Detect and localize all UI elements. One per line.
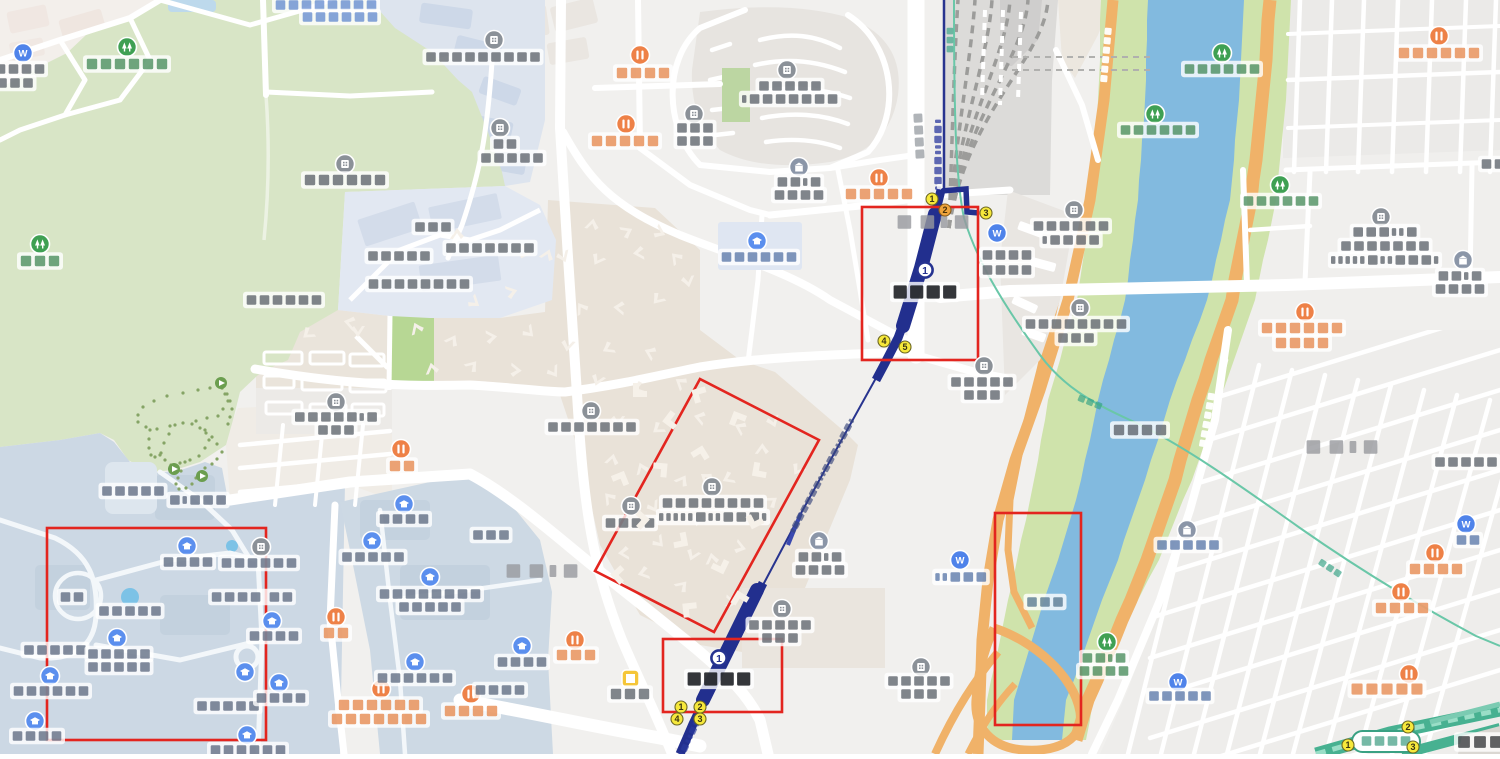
svg-text:3: 3 [1410, 742, 1415, 752]
svg-text:1: 1 [922, 265, 928, 277]
svg-text:4: 4 [674, 714, 679, 724]
svg-text:2: 2 [1405, 722, 1410, 732]
svg-text:3: 3 [697, 714, 702, 724]
svg-text:W: W [1462, 519, 1471, 530]
svg-text:W: W [993, 228, 1002, 239]
svg-text:W: W [19, 48, 28, 59]
svg-text:3: 3 [983, 208, 988, 218]
svg-text:1: 1 [678, 702, 683, 712]
svg-text:5: 5 [902, 342, 907, 352]
svg-text:1: 1 [1345, 740, 1350, 750]
svg-text:W: W [956, 555, 965, 566]
svg-text:2: 2 [697, 702, 702, 712]
svg-text:2: 2 [942, 205, 947, 215]
svg-text:1: 1 [716, 653, 722, 665]
svg-text:1: 1 [929, 194, 934, 204]
svg-text:4: 4 [881, 336, 886, 346]
svg-text:W: W [1174, 677, 1183, 688]
